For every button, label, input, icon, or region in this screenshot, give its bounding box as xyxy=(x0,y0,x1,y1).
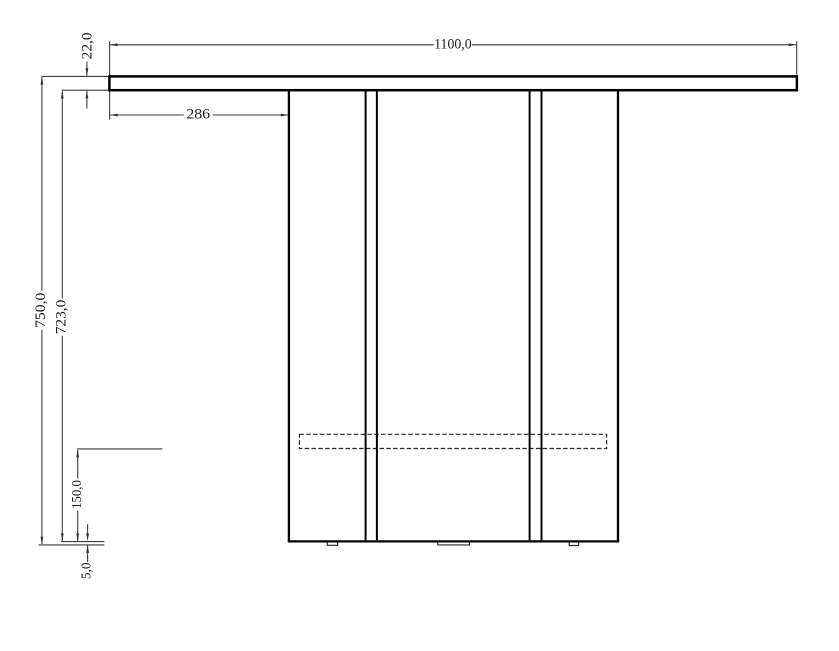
svg-text:723,0: 723,0 xyxy=(54,300,70,335)
svg-text:22,0: 22,0 xyxy=(80,32,96,59)
svg-text:750,0: 750,0 xyxy=(33,293,49,328)
svg-text:1100,0: 1100,0 xyxy=(434,36,472,52)
svg-text:286: 286 xyxy=(186,107,210,123)
svg-text:150,0: 150,0 xyxy=(70,480,85,509)
svg-text:5,0: 5,0 xyxy=(79,563,94,580)
